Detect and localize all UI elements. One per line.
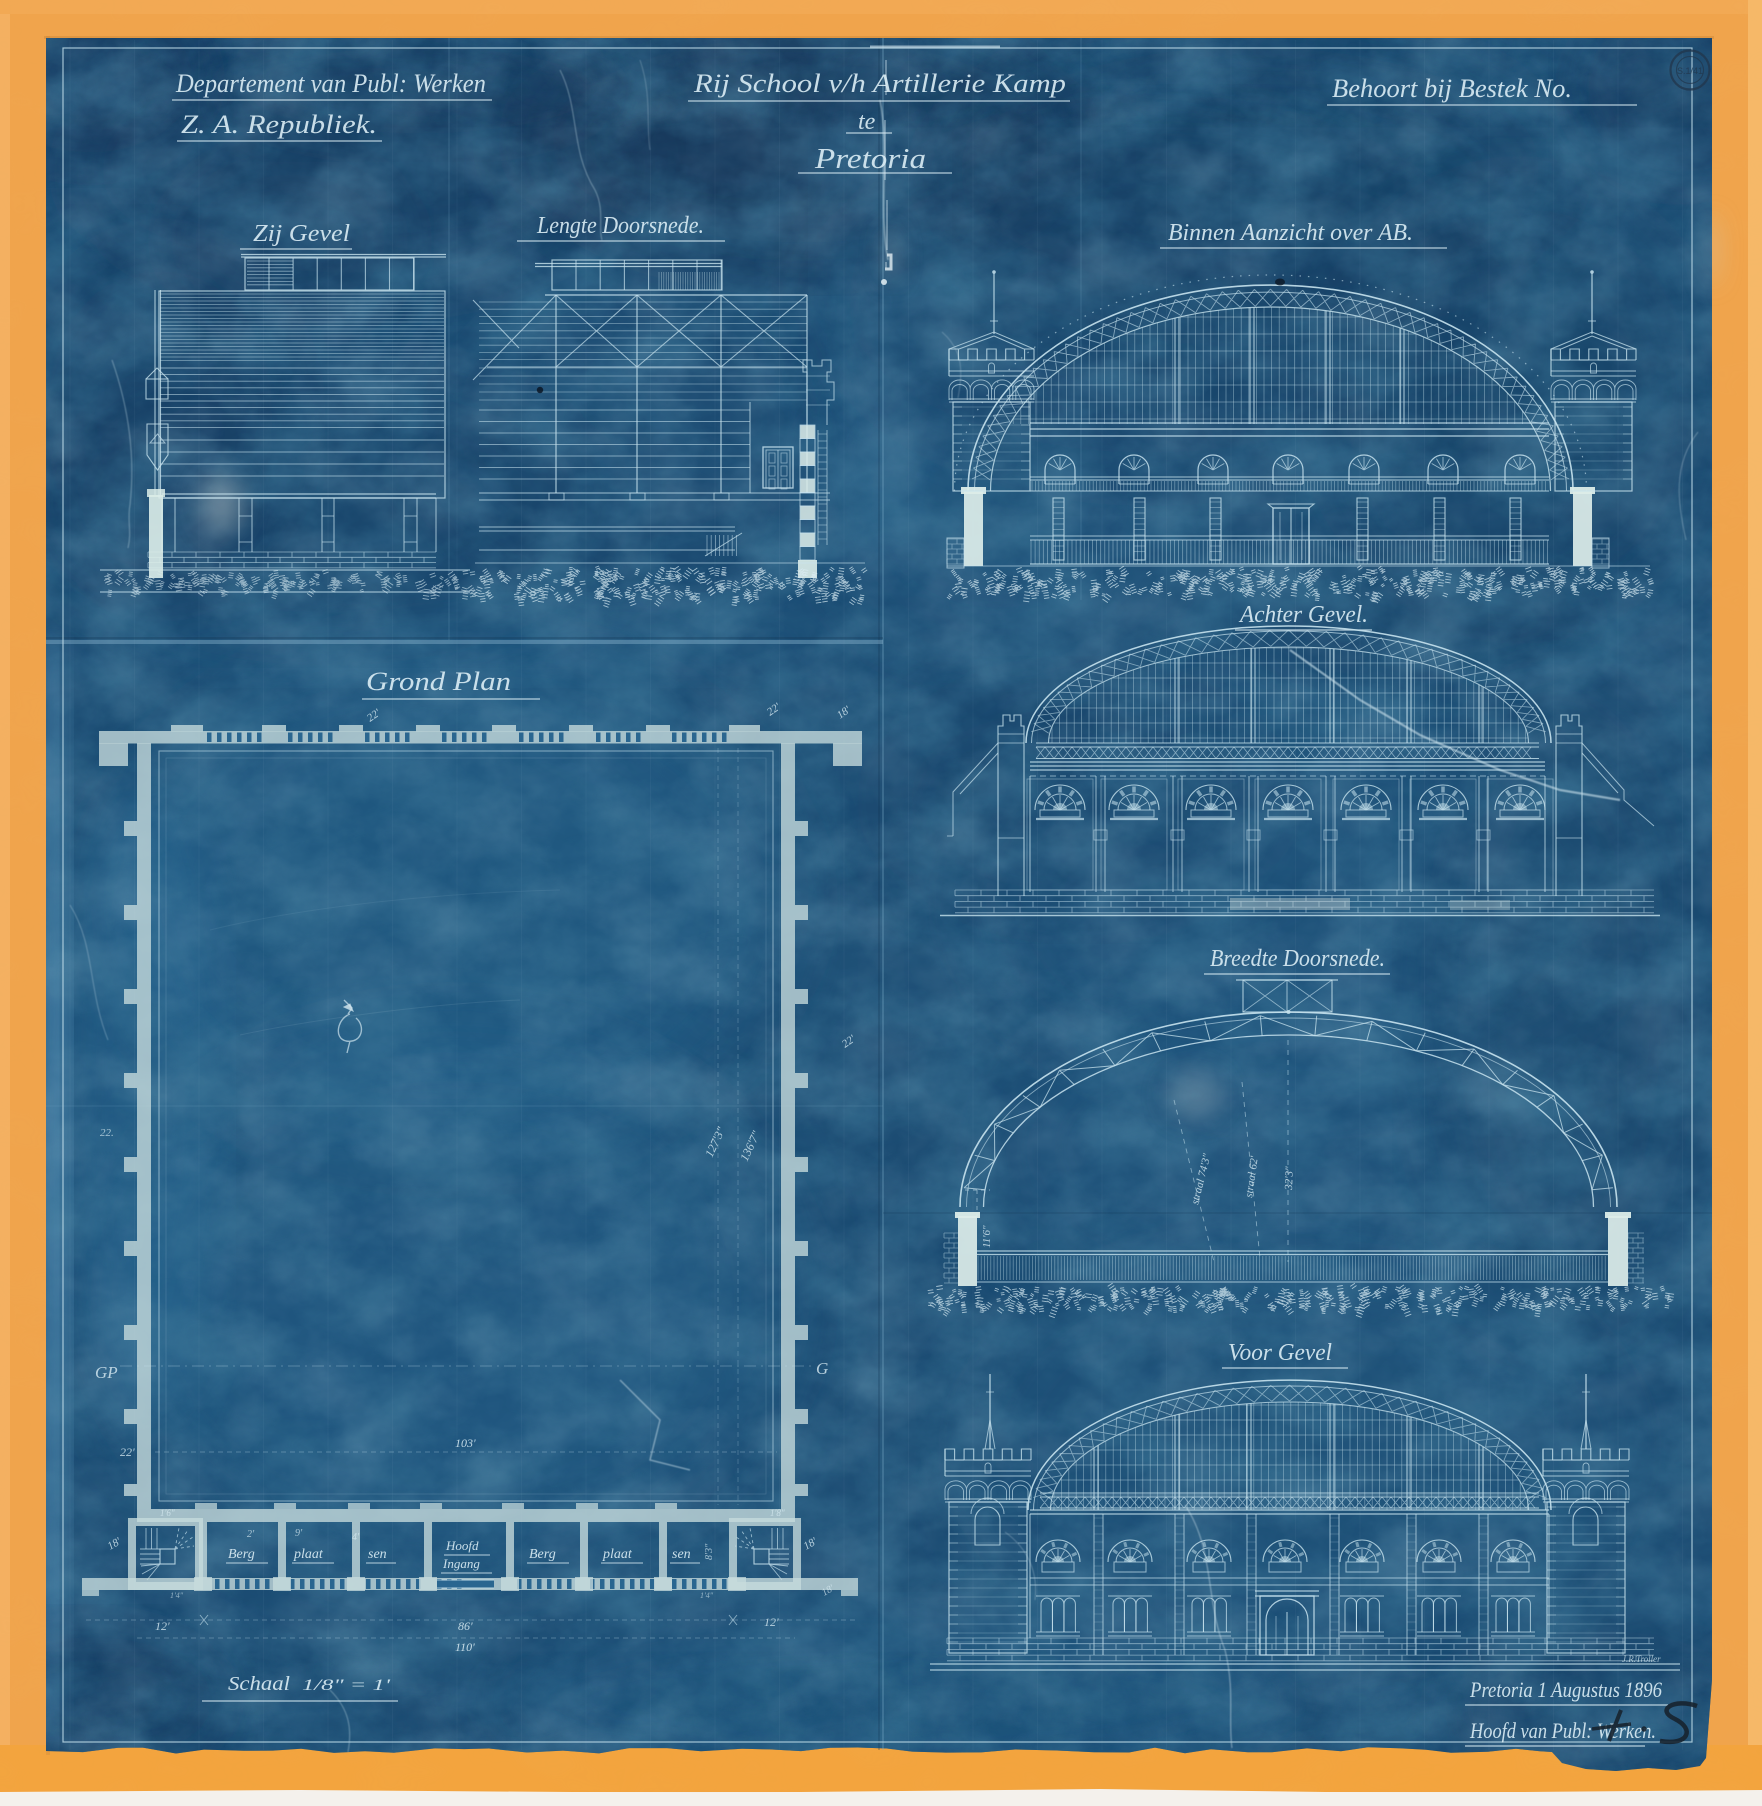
svg-text:Hoofd: Hoofd [445,1538,479,1553]
svg-text:1/8" = 1': 1/8" = 1' [302,1677,391,1694]
svg-text:Achter Gevel.: Achter Gevel. [1238,602,1368,628]
svg-text:Z. A. Republiek.: Z. A. Republiek. [181,110,377,139]
svg-text:110': 110' [455,1640,475,1654]
svg-text:G: G [816,1359,828,1378]
svg-text:1'4": 1'4" [700,1591,714,1600]
svg-text:Zij Gevel: Zij Gevel [253,221,350,247]
svg-text:22': 22' [120,1445,135,1459]
svg-text:Schaal: Schaal [228,1673,291,1695]
svg-text:103': 103' [455,1436,476,1450]
svg-text:Binnen Aanzicht over AB.: Binnen Aanzicht over AB. [1168,220,1413,246]
svg-text:Pretoria 1 Augustus 1896: Pretoria 1 Augustus 1896 [1469,1677,1662,1702]
svg-text:Behoort bij Bestek No.: Behoort bij Bestek No. [1332,74,1572,103]
svg-text:Grond Plan: Grond Plan [366,667,511,696]
svg-text:1'8": 1'8" [770,1508,785,1518]
svg-text:22.: 22. [100,1127,114,1139]
svg-text:4': 4' [352,1532,360,1543]
svg-text:Ingang: Ingang [442,1556,480,1571]
svg-text:sen: sen [672,1547,691,1562]
svg-text:12': 12' [764,1615,779,1629]
svg-text:1'4": 1'4" [170,1591,184,1600]
svg-text:Rij School v/h Artillerie Kamp: Rij School v/h Artillerie Kamp [693,69,1066,98]
svg-text:Hoofd van Publ: Werken.: Hoofd van Publ: Werken. [1469,1718,1656,1743]
svg-text:GP: GP [95,1363,118,1382]
svg-text:J.R.Troller: J.R.Troller [1622,1654,1661,1664]
svg-text:1'6": 1'6" [160,1508,175,1518]
svg-text:11'6": 11'6" [981,1225,993,1248]
svg-text:Lengte Doorsnede.: Lengte Doorsnede. [536,213,704,239]
svg-text:Berg: Berg [228,1547,255,1562]
svg-text:Voor Gevel: Voor Gevel [1228,1340,1332,1366]
svg-text:86': 86' [458,1619,473,1633]
svg-text:Breedte Doorsnede.: Breedte Doorsnede. [1210,946,1385,972]
svg-text:plaat: plaat [293,1547,324,1562]
svg-text:12': 12' [155,1619,170,1633]
svg-text:Berg: Berg [529,1547,556,1562]
svg-text:te: te [858,109,876,135]
svg-text:plaat: plaat [602,1547,633,1562]
svg-text:S.1/41: S.1/41 [1677,66,1703,76]
svg-text:9': 9' [295,1528,303,1539]
svg-text:32'3": 32'3" [1283,1166,1296,1191]
svg-text:Departement van Publ: Werken: Departement van Publ: Werken [175,69,486,98]
svg-text:2': 2' [247,1529,255,1540]
svg-text:8'3": 8'3" [704,1543,715,1560]
svg-text:sen: sen [368,1547,387,1562]
svg-text:Pretoria: Pretoria [814,144,926,175]
